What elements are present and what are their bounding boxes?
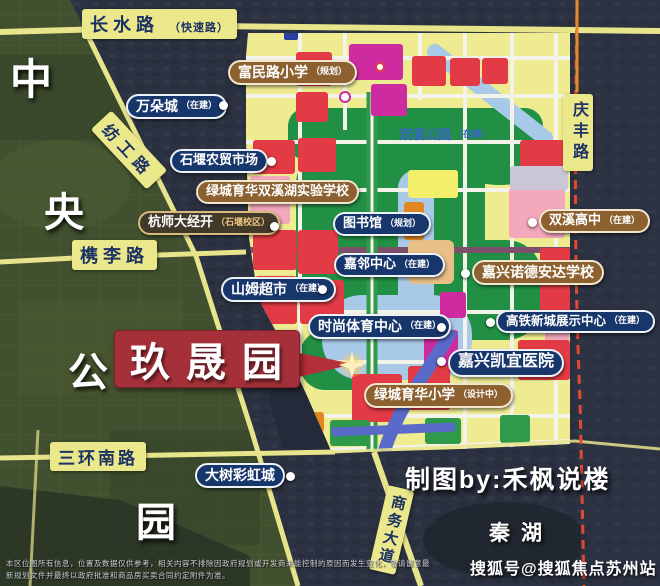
poi-label-shuangxi-highschool: 双溪高中 （在建） [539, 209, 650, 233]
poi-status: （规划） [385, 218, 421, 230]
location-dot [486, 318, 495, 327]
poi-status: （在建） [399, 259, 435, 271]
disclaimer-line-1: 本区位图所有信息，位置及数据仅供参考，相关内容不排除因政府规划或开发商未能控制的… [6, 558, 430, 569]
poi-label-jialin-center: 嘉邻中心 （在建） [334, 253, 445, 277]
lake-label: 秦湖 [489, 517, 553, 547]
poi-label-library: 图书馆 （规划） [333, 212, 431, 236]
park-label: 双溪公园 （在建） [399, 124, 490, 143]
poi-name: 大树彩虹城 [205, 466, 275, 484]
location-dot [461, 269, 470, 278]
location-dot [528, 218, 537, 227]
poi-status: （在建） [604, 215, 640, 227]
poi-name: 绿城育华小学 [374, 386, 455, 404]
poi-name: 嘉兴凯宜医院 [458, 352, 554, 373]
poi-label-jiaxing-kaiyi-hospital: 嘉兴凯宜医院 [448, 349, 564, 377]
poi-name: 嘉邻中心 [344, 256, 396, 273]
poi-label-lvcheng-primary: 绿城育华小学 （设计中） [364, 383, 513, 408]
disclaimer-line-2: 新规划文件并最终以政府批准和商品房买卖合同约定附件为准。 [6, 570, 230, 581]
district-char-yuan: 园 [136, 490, 176, 548]
project-name-box: 玖晟园 [114, 330, 300, 388]
poi-name: 绿城育华双溪湖实验学校 [206, 183, 349, 200]
poi-status: （在建） [609, 315, 645, 327]
road-name: 商务大道 [375, 493, 408, 567]
road-name: 三环南路 [58, 449, 138, 468]
poi-name: 双溪高中 [549, 212, 601, 229]
location-dot [267, 157, 276, 166]
road-label-fanggong: 纺工路 [91, 110, 167, 189]
poi-name: 富民路小学 [238, 63, 308, 81]
location-dot [437, 357, 446, 366]
road-name: 纺工路 [98, 122, 155, 182]
road-label-zuili: 槜李路 [72, 240, 157, 270]
location-dot [286, 472, 295, 481]
road-label-changshui: 长水路 （快速路） [82, 9, 237, 39]
poi-status: （石堰校区） [216, 217, 270, 229]
poi-name: 石堰农贸市场 [180, 152, 258, 169]
poi-name: 嘉兴诺德安达学校 [482, 263, 594, 281]
poi-name: 高铁新城展示中心 [506, 313, 606, 329]
poi-status: （规划） [311, 66, 347, 78]
location-dot [318, 285, 327, 294]
poi-label-nord-anglia-school: 嘉兴诺德安达学校 [472, 260, 604, 285]
poi-label-wanduocheng: 万朵城 （在建） [126, 94, 227, 119]
road-name: 长水路 [90, 15, 159, 35]
park-name: 双溪公园 [399, 124, 451, 143]
poi-status: （设计中） [458, 389, 503, 401]
poi-status: （在建） [181, 100, 217, 112]
poi-label-fashion-sports-center: 时尚体育中心 （在建） [308, 314, 451, 339]
park-status: （在建） [454, 127, 490, 140]
road-name: 槜李路 [80, 246, 149, 266]
poi-name: 图书馆 [343, 215, 382, 232]
location-map: 长水路 （快速路） 纺工路 槜李路 庆丰路 三环南路 商务大道 中 央 公 园 … [0, 0, 660, 586]
poi-label-lvcheng-experimental-school: 绿城育华双溪湖实验学校 [196, 180, 359, 204]
poi-label-dashu-rainbow-city: 大树彩虹城 [195, 463, 285, 488]
label-layer: 长水路 （快速路） 纺工路 槜李路 庆丰路 三环南路 商务大道 中 央 公 园 … [0, 0, 660, 586]
poi-status: （在建） [405, 320, 441, 332]
poi-label-shiyan-market: 石堰农贸市场 [170, 149, 268, 173]
location-dot [437, 323, 446, 332]
road-type: （快速路） [169, 22, 229, 34]
poi-label-hsr-newtown-exhibition-center: 高铁新城展示中心 （在建） [496, 310, 655, 333]
road-label-qingfeng: 庆丰路 [563, 94, 593, 171]
location-dot [219, 101, 228, 110]
watermark: 搜狐号@搜狐焦点苏州站 [470, 555, 657, 579]
poi-name: 时尚体育中心 [318, 317, 402, 335]
district-char-zhong: 中 [10, 46, 52, 107]
district-char-gong: 公 [68, 340, 108, 398]
district-char-yang: 央 [44, 180, 84, 238]
road-label-sanhuan: 三环南路 [50, 442, 146, 471]
map-credit: 制图by:禾枫说楼 [405, 460, 611, 496]
poi-label-hangshida-campus: 杭师大经开 （石堰校区） [138, 211, 280, 235]
road-name: 庆丰路 [570, 101, 587, 164]
poi-name: 山姆超市 [231, 280, 287, 298]
poi-name: 万朵城 [136, 97, 178, 115]
poi-label-fuminlu-primary: 富民路小学 （规划） [228, 60, 357, 85]
poi-name: 杭师大经开 [148, 214, 213, 231]
location-dot [270, 222, 279, 231]
